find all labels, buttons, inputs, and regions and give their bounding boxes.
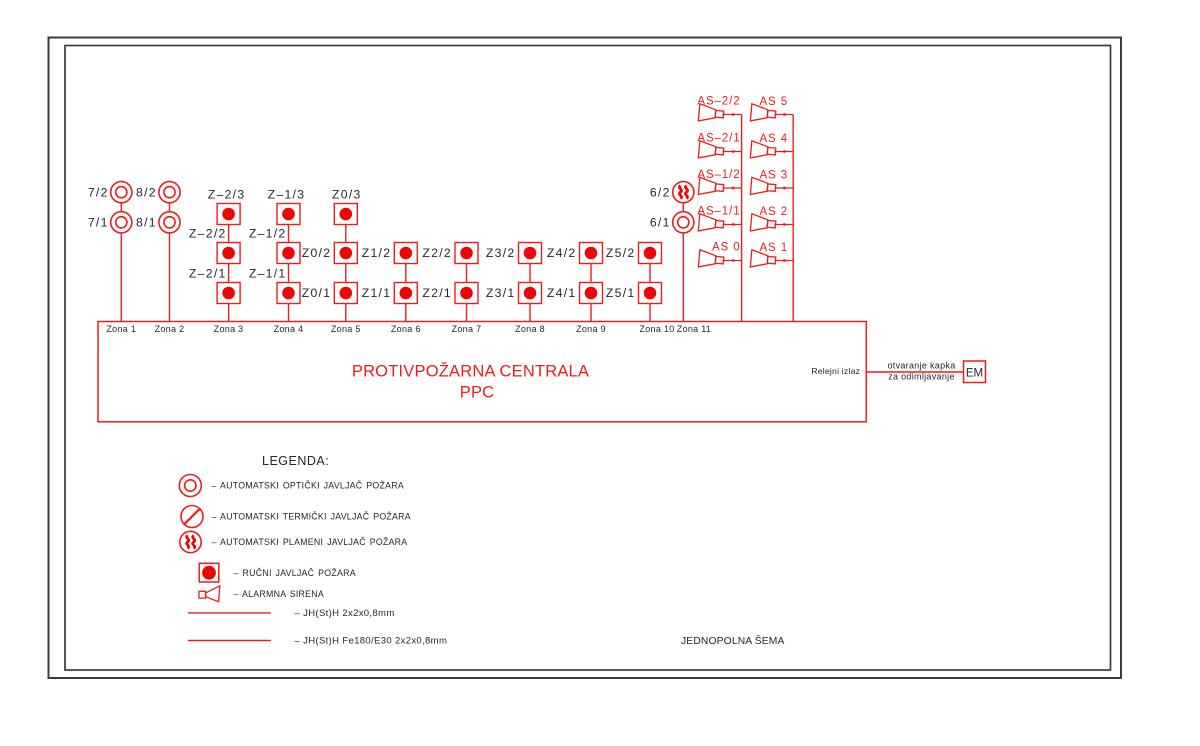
svg-text:Relejni izlaz: Relejni izlaz: [811, 366, 860, 376]
svg-text:AS–1/2: AS–1/2: [697, 169, 740, 181]
svg-text:Z3/2: Z3/2: [486, 246, 516, 260]
svg-text:Z–2/3: Z–2/3: [208, 188, 246, 202]
svg-text:Zona 6: Zona 6: [391, 324, 421, 334]
svg-text:– JH(St)H 2x2x0,8mm: – JH(St)H 2x2x0,8mm: [295, 608, 395, 619]
svg-text:AS 2: AS 2: [759, 206, 788, 218]
svg-text:– AUTOMATSKI OPTIČKI JAVLJA: – AUTOMATSKI OPTIČKI JAVLJAČ POŽARA: [212, 481, 404, 491]
svg-text:EM: EM: [966, 367, 983, 379]
svg-text:Z2/2: Z2/2: [422, 246, 452, 260]
svg-text:PROTIVPOŽARNA CENTRALA: PROTIVPOŽARNA CENTRALA: [352, 362, 589, 381]
svg-text:Zona 2: Zona 2: [155, 324, 185, 334]
svg-text:Z0/2: Z0/2: [302, 246, 332, 260]
svg-text:7/2: 7/2: [88, 185, 109, 199]
svg-text:8/1: 8/1: [136, 216, 157, 230]
svg-text:– ALARMNA SIRENA: – ALARMNA SIRENA: [234, 589, 325, 599]
svg-text:8/2: 8/2: [136, 185, 157, 199]
svg-text:Z0/3: Z0/3: [332, 188, 362, 202]
svg-text:Zona 7: Zona 7: [452, 324, 482, 334]
svg-text:Zona 10: Zona 10: [639, 324, 674, 334]
svg-text:– AUTOMATSKI PLAMENI JAVLJA: – AUTOMATSKI PLAMENI JAVLJAČ POŽARA: [212, 537, 408, 547]
svg-text:JEDNOPOLNA ŠEMA: JEDNOPOLNA ŠEMA: [681, 634, 785, 647]
svg-text:AS–2/2: AS–2/2: [697, 96, 740, 108]
svg-text:– AUTOMATSKI TERMIČKI JAVLJ: – AUTOMATSKI TERMIČKI JAVLJAČ POŽARA: [212, 512, 411, 522]
svg-text:Zona 3: Zona 3: [214, 324, 244, 334]
svg-text:Z3/1: Z3/1: [486, 286, 516, 300]
svg-text:Z2/1: Z2/1: [422, 286, 452, 300]
svg-text:AS–1/1: AS–1/1: [697, 206, 740, 218]
svg-text:za odimljavanje: za odimljavanje: [888, 371, 955, 381]
svg-text:AS 3: AS 3: [759, 170, 788, 182]
svg-text:AS 1: AS 1: [759, 242, 788, 254]
svg-text:– JH(St)H Fe180/E30 2x2x0,8: – JH(St)H Fe180/E30 2x2x0,8mm: [295, 636, 448, 647]
svg-text:Zona 1: Zona 1: [106, 324, 136, 334]
svg-text:– RUČNI JAVLJAČ POŽARA: – RUČNI JAVLJAČ POŽARA: [234, 568, 356, 578]
svg-text:Zona 8: Zona 8: [515, 324, 545, 334]
svg-text:Z–1/3: Z–1/3: [268, 188, 306, 202]
svg-text:Z–1/2: Z–1/2: [249, 227, 287, 241]
svg-text:Z–2/1: Z–2/1: [189, 267, 227, 281]
svg-text:Z0/1: Z0/1: [302, 286, 332, 300]
svg-text:Z5/1: Z5/1: [606, 286, 636, 300]
svg-text:Z5/2: Z5/2: [606, 246, 636, 260]
svg-text:AS 0: AS 0: [712, 242, 741, 254]
svg-text:Zona 9: Zona 9: [576, 324, 606, 334]
svg-text:Zona 11: Zona 11: [677, 324, 711, 334]
svg-text:6/1: 6/1: [650, 216, 671, 230]
svg-text:Zona 5: Zona 5: [331, 324, 361, 334]
svg-text:Z–1/1: Z–1/1: [249, 267, 287, 281]
svg-text:Z1/2: Z1/2: [362, 246, 392, 260]
svg-text:PPC: PPC: [460, 384, 495, 402]
svg-text:Zona 4: Zona 4: [274, 324, 304, 334]
svg-text:AS 4: AS 4: [759, 133, 788, 145]
svg-text:Z1/1: Z1/1: [362, 286, 392, 300]
svg-text:otvaranje kapka: otvaranje kapka: [887, 361, 955, 371]
svg-text:7/1: 7/1: [88, 216, 109, 230]
svg-text:LEGENDA:: LEGENDA:: [262, 454, 329, 468]
svg-text:Z4/2: Z4/2: [547, 246, 577, 260]
svg-text:AS 5: AS 5: [759, 96, 788, 108]
svg-text:Z4/1: Z4/1: [547, 286, 577, 300]
svg-text:6/2: 6/2: [650, 185, 671, 199]
svg-text:Z–2/2: Z–2/2: [189, 227, 227, 241]
svg-text:AS–2/1: AS–2/1: [697, 133, 740, 145]
